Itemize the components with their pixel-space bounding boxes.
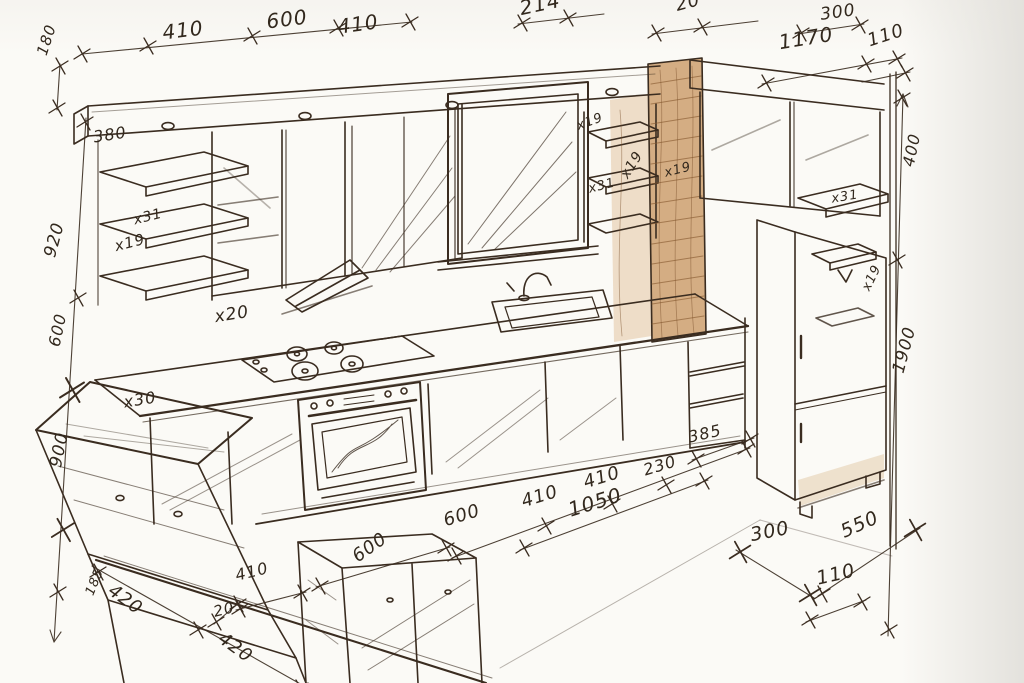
kitchen-sketch-page: 180 410 600 410 214 20 300 1170 110 400 … <box>0 0 1024 683</box>
island <box>36 382 492 683</box>
right-wall <box>890 72 896 549</box>
cornice <box>74 66 660 144</box>
cooktop <box>242 336 434 382</box>
cutting-board <box>282 260 372 314</box>
left-shelf-unit <box>98 132 248 305</box>
faucet-spout <box>507 273 551 296</box>
dim-label: 410 <box>336 11 380 37</box>
floor-lines <box>500 520 892 668</box>
dim-label: 600 <box>265 7 308 32</box>
dim-label: 300 <box>819 2 856 24</box>
dim-label: 410 <box>161 18 204 43</box>
count-label: x31 <box>831 188 860 205</box>
kitchen-line-drawing <box>0 0 1024 683</box>
sink <box>492 273 612 332</box>
